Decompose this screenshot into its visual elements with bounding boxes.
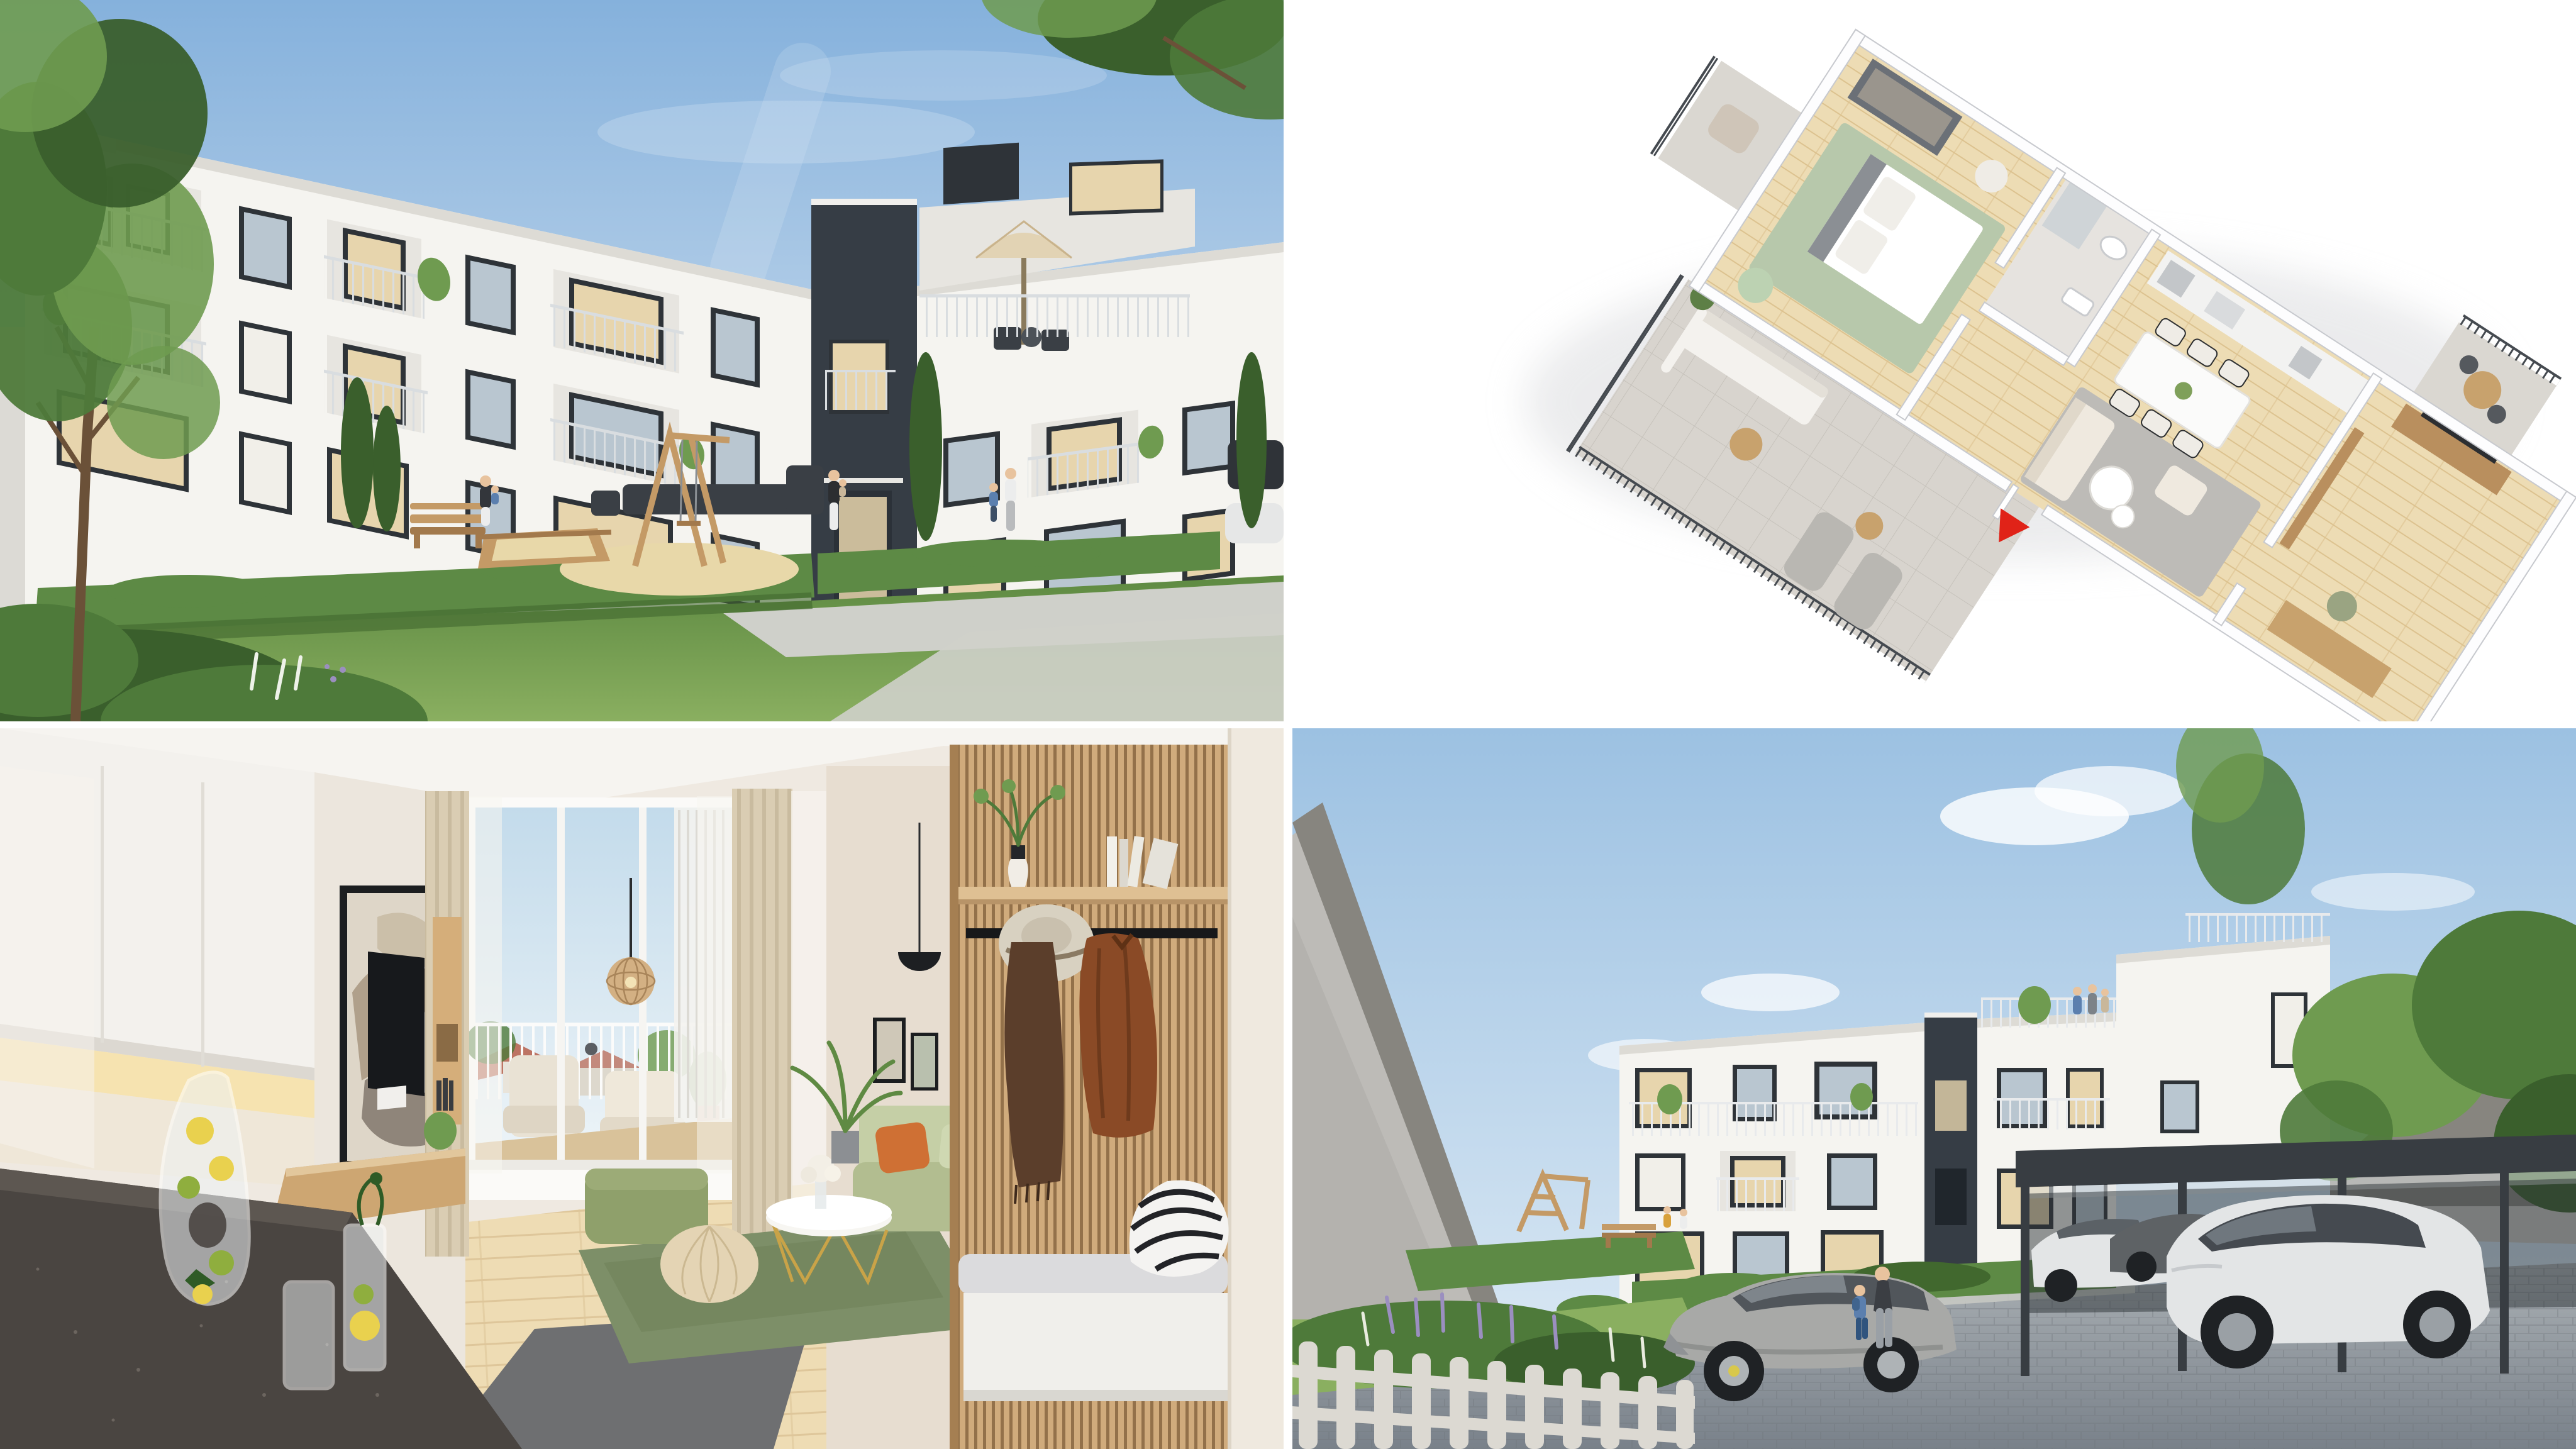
building-dark-tower (1924, 1013, 1977, 1297)
slat-wall (950, 728, 1284, 1449)
kitchen-wall (0, 728, 314, 1187)
rendering-exterior-parking (1292, 728, 2576, 1449)
cream-cabinet (1228, 728, 1284, 1449)
media-wall (314, 917, 352, 1093)
a-top-floor (1629, 1062, 1918, 1136)
suv-white (2167, 1195, 2490, 1368)
rendering-interior-living (0, 728, 1284, 1449)
rendering-exterior-courtyard (0, 0, 1284, 721)
rendering-3d-floor-plan (1292, 0, 2576, 721)
a-mid-floor (1635, 1151, 1877, 1211)
tv (368, 952, 425, 1096)
wall-shelf (433, 917, 462, 1124)
knit-pouf (660, 1225, 758, 1303)
jacket (1079, 933, 1157, 1138)
